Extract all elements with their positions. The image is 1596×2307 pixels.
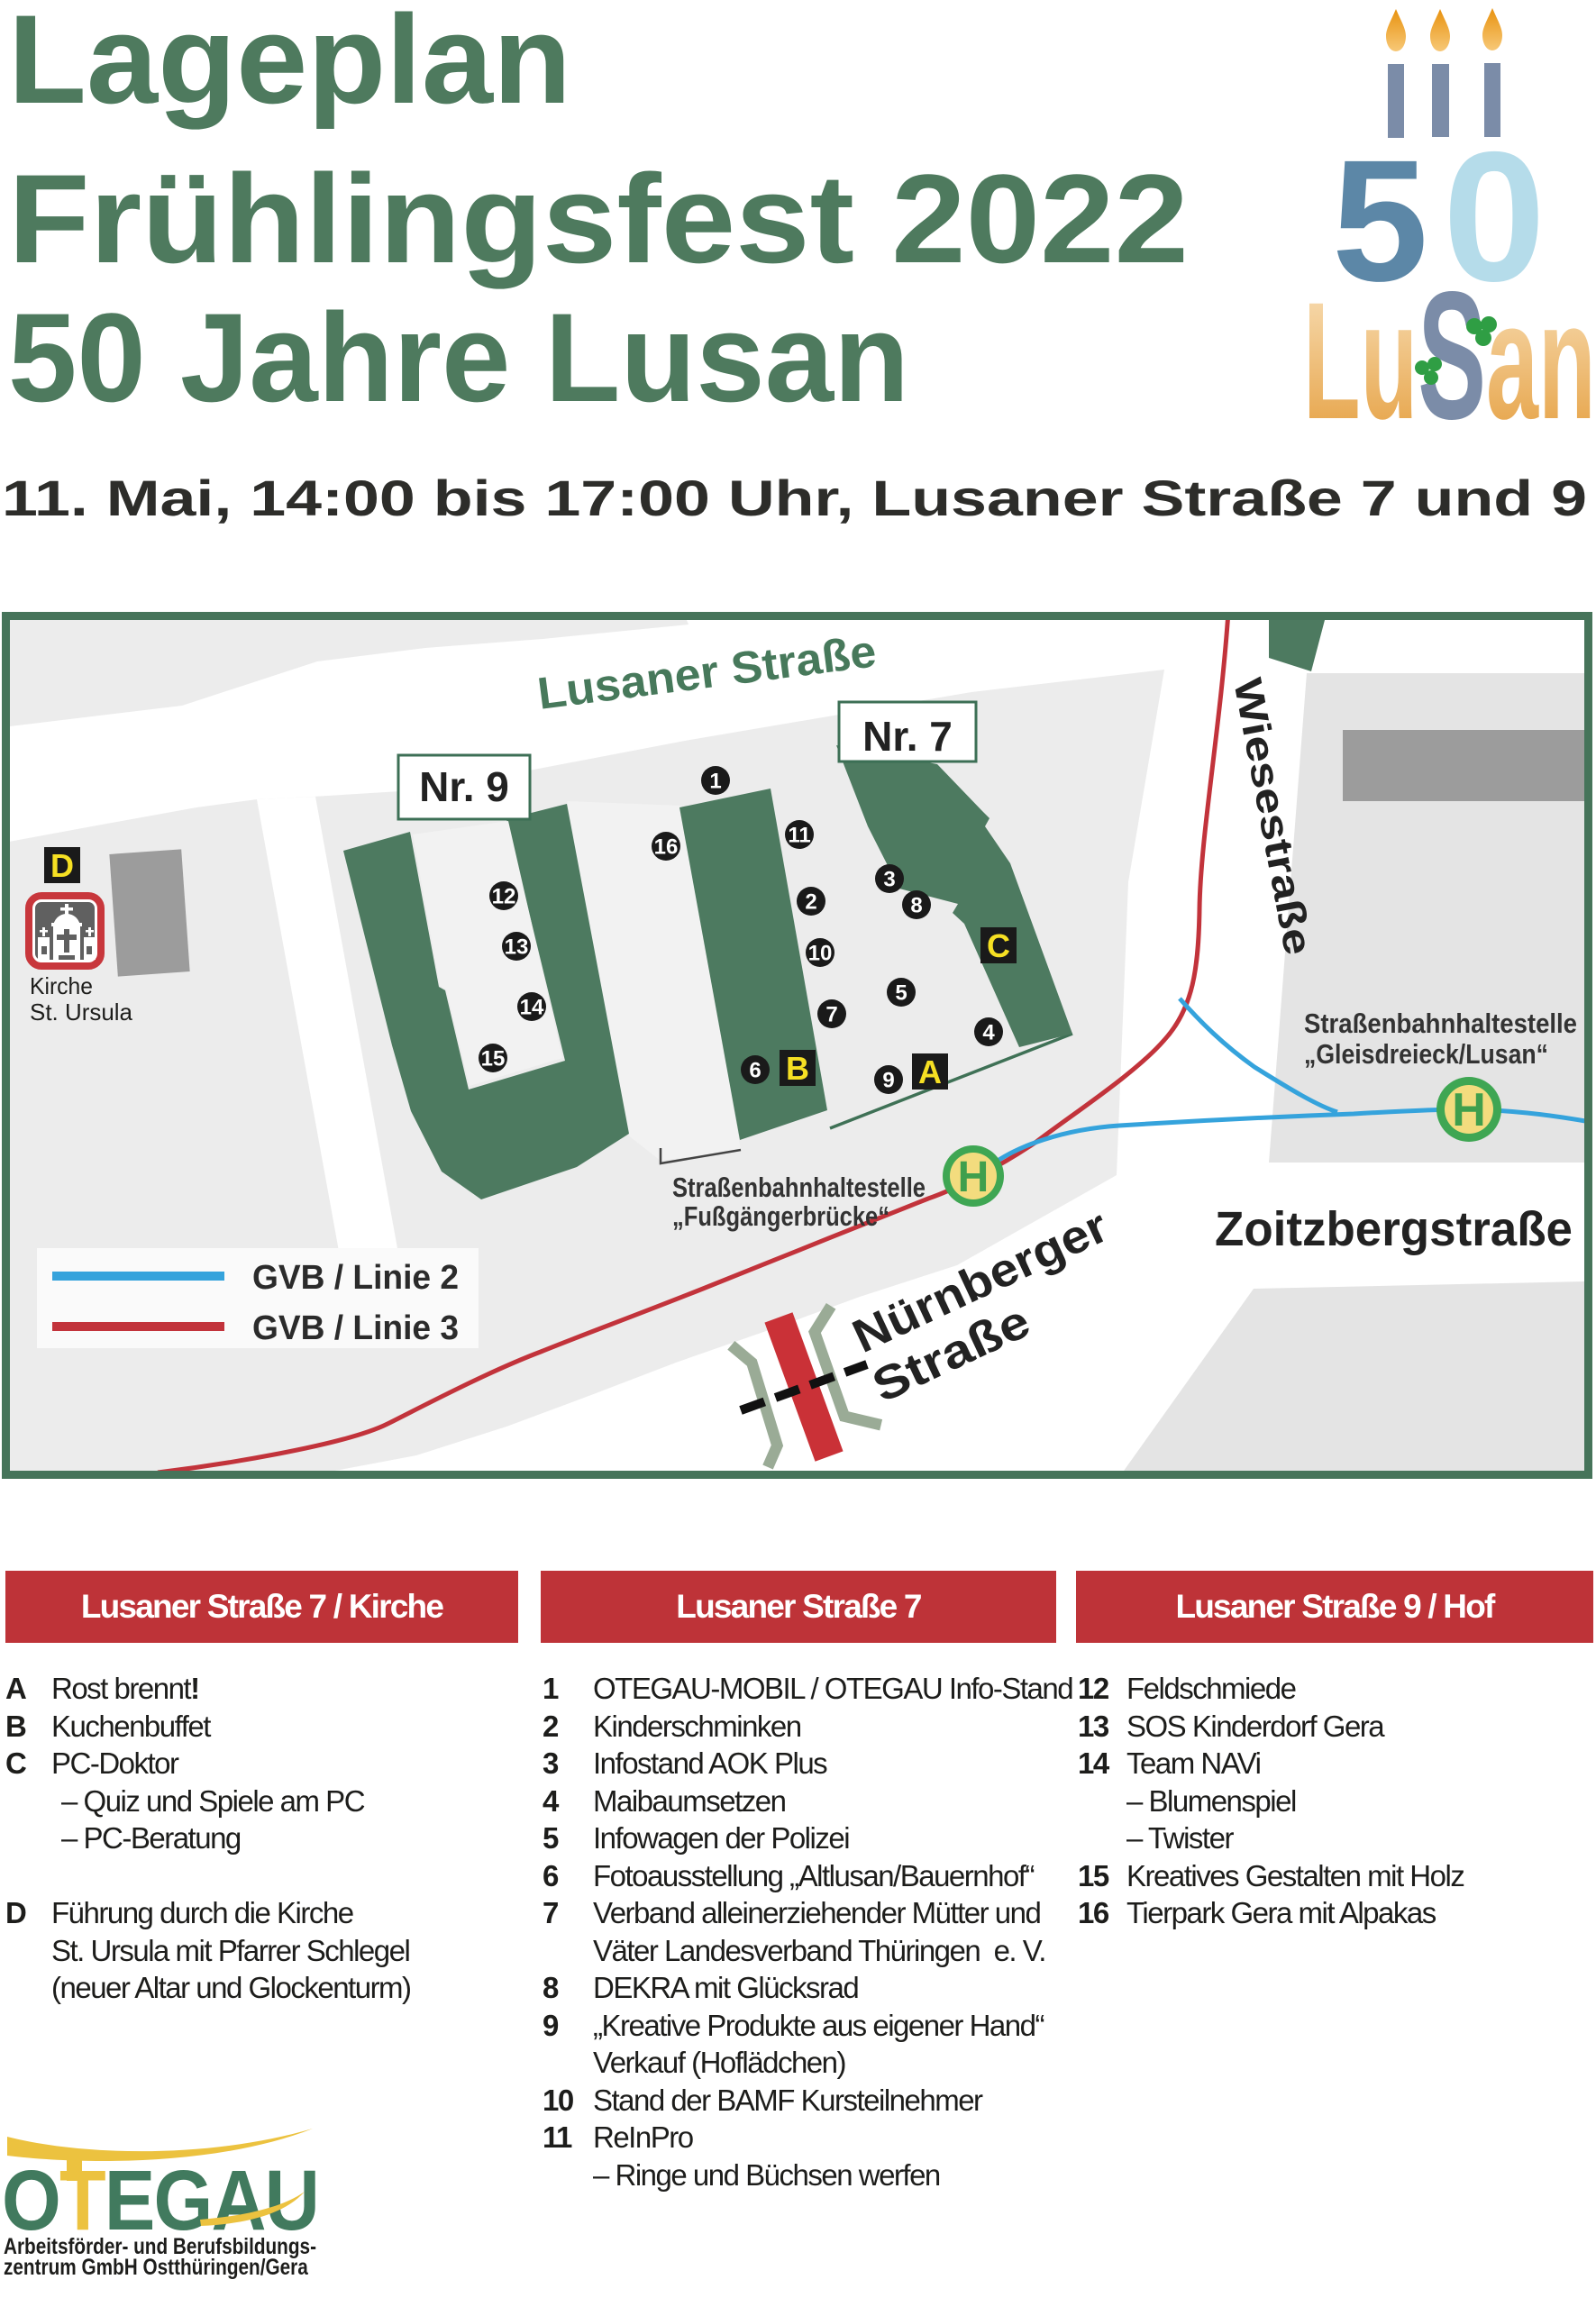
- svg-text:9: 9: [882, 1069, 894, 1093]
- svg-text:LuSan: LuSan: [1303, 254, 1596, 424]
- svg-text:5: 5: [895, 981, 907, 1006]
- svg-text:D: D: [50, 847, 74, 884]
- svg-text:C: C: [987, 927, 1010, 964]
- svg-text:10: 10: [808, 942, 833, 966]
- svg-text:6: 6: [749, 1059, 761, 1083]
- svg-text:„Gleisdreieck/Lusan“: „Gleisdreieck/Lusan“: [1304, 1038, 1548, 1070]
- svg-text:50 Jahre Lusan: 50 Jahre Lusan: [8, 287, 909, 428]
- svg-text:Nr. 9: Nr. 9: [419, 763, 509, 810]
- svg-text:Lusaner Straße: Lusaner Straße: [534, 625, 879, 719]
- svg-text:11: 11: [788, 824, 810, 848]
- svg-text:H: H: [1452, 1084, 1486, 1136]
- svg-text:Zoitzbergstraße: Zoitzbergstraße: [1215, 1202, 1573, 1256]
- svg-text:Straßenbahnhaltestelle: Straßenbahnhaltestelle: [672, 1172, 926, 1203]
- svg-text:8: 8: [910, 894, 922, 918]
- svg-text:Lageplan: Lageplan: [8, 0, 571, 130]
- svg-text:Kirche: Kirche: [30, 972, 93, 999]
- svg-text:2: 2: [805, 890, 816, 915]
- svg-text:GVB / Linie 2: GVB / Linie 2: [252, 1259, 459, 1297]
- svg-text:12: 12: [492, 885, 516, 909]
- svg-text:16: 16: [654, 835, 679, 860]
- svg-text:H: H: [958, 1153, 990, 1201]
- svg-text:B: B: [786, 1050, 809, 1087]
- svg-text:„Fußgängerbrücke“: „Fußgängerbrücke“: [672, 1200, 889, 1232]
- svg-text:3: 3: [883, 868, 895, 892]
- svg-text:1: 1: [709, 770, 721, 794]
- svg-text:Straßenbahnhaltestelle: Straßenbahnhaltestelle: [1304, 1008, 1577, 1039]
- svg-text:15: 15: [481, 1047, 506, 1071]
- svg-text:Nr. 7: Nr. 7: [862, 713, 953, 760]
- svg-text:14: 14: [520, 996, 544, 1020]
- svg-text:11. Mai, 14:00 bis 17:00 Uhr,: 11. Mai, 14:00 bis 17:00 Uhr, Lusaner St…: [2, 470, 1587, 526]
- svg-text:A: A: [918, 1053, 942, 1090]
- svg-text:Frühlingsfest 2022: Frühlingsfest 2022: [8, 148, 1189, 289]
- svg-text:St. Ursula: St. Ursula: [30, 998, 133, 1026]
- svg-text:4: 4: [982, 1021, 995, 1045]
- svg-text:GVB / Linie 3: GVB / Linie 3: [252, 1309, 459, 1347]
- svg-text:7: 7: [825, 1003, 837, 1027]
- svg-text:13: 13: [505, 935, 529, 960]
